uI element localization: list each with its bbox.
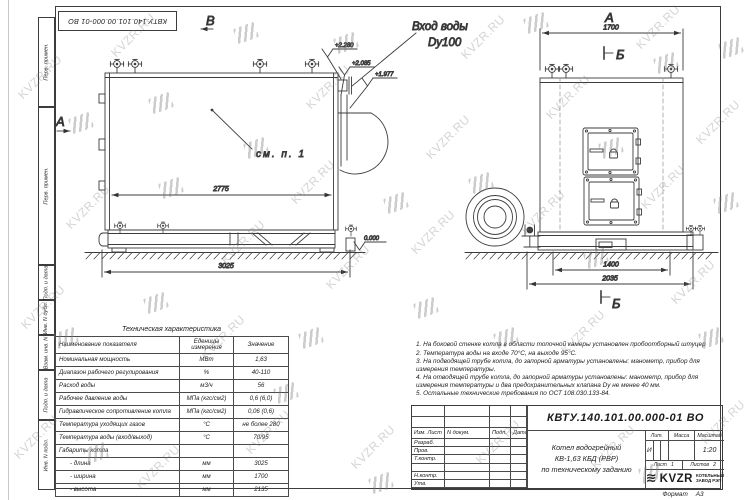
blower-valve bbox=[526, 227, 533, 234]
mass-header: Масса bbox=[669, 431, 696, 441]
title-block-signature-grid: Изм. ЛистN докум.Подп.ДатаРазраб.Пров.Т.… bbox=[412, 406, 527, 488]
spec-param-unit bbox=[180, 445, 234, 458]
spec-table: Техническая характеристика Наименование … bbox=[55, 326, 288, 497]
title-block-cell bbox=[412, 464, 445, 472]
spec-param-name: Расход воды bbox=[56, 380, 180, 393]
spec-table-row: Рабочее давление водыМПа (кгс/см2)0,6 (6… bbox=[56, 393, 289, 406]
title-block-cell: Подп. bbox=[490, 428, 511, 439]
title-block-cell: Дата bbox=[511, 428, 527, 439]
elevation-1977: +1.977 bbox=[375, 72, 394, 78]
spec-param-value bbox=[234, 445, 289, 458]
kvzr-logo-text: KVZR bbox=[660, 473, 693, 485]
dim-2775: 2775 bbox=[212, 186, 229, 193]
spec-param-name: - длина bbox=[56, 458, 180, 471]
lit-cell-2 bbox=[654, 441, 662, 460]
spec-table-row: - длинамм3025 bbox=[56, 458, 289, 471]
spec-table-row: Номинальная мощностьМВт1,63 bbox=[56, 354, 289, 367]
title-block-cell: Н.контр. bbox=[412, 472, 445, 480]
spec-table-grid: Наименование показателя Еденицы измерени… bbox=[55, 336, 289, 497]
spec-param-unit: МПа (кгс/см2) bbox=[180, 406, 234, 419]
product-name-line1: Котел водогрейный bbox=[552, 443, 621, 454]
drain-valve-icon bbox=[115, 222, 126, 233]
title-block-cell bbox=[490, 439, 511, 447]
elevation-2280: +2.280 bbox=[335, 43, 354, 49]
section-label-B-top: Б bbox=[616, 47, 625, 62]
spec-param-unit: МПа (кгс/см2) bbox=[180, 393, 234, 406]
title-block-cell bbox=[412, 417, 445, 428]
title-block-cell bbox=[490, 447, 511, 455]
elevation-0000: 0.000 bbox=[364, 236, 380, 242]
title-block-cell bbox=[511, 472, 527, 480]
kvzr-coil-icon: ≋ bbox=[646, 472, 657, 485]
sheets-total: 2 bbox=[713, 462, 716, 468]
lit-value: И bbox=[646, 441, 654, 460]
title-block-cell bbox=[445, 417, 490, 428]
drawing-sheet: { "watermark": { "text": "KVZR.RU" }, "s… bbox=[0, 0, 750, 500]
note-1: 1. На боковой стенке котла в области топ… bbox=[416, 341, 722, 349]
spec-param-unit: мм bbox=[180, 484, 234, 497]
inlet-label-line1: Вход воды bbox=[412, 21, 468, 33]
spec-param-unit: м3/ч bbox=[180, 380, 234, 393]
sheet-number: 1 bbox=[671, 462, 674, 468]
valve-icon bbox=[664, 64, 677, 78]
spec-param-value: 1,63 bbox=[234, 354, 289, 367]
technical-notes: 1. На боковой стенке котла в области топ… bbox=[416, 341, 722, 399]
sheet-label: Лист bbox=[654, 462, 667, 468]
title-block-cell bbox=[445, 480, 490, 488]
base-frame-side bbox=[538, 232, 693, 250]
spec-table-row: Расход водым3/ч56 bbox=[56, 380, 289, 393]
ground-hatch bbox=[86, 253, 356, 260]
valve-icon bbox=[305, 59, 318, 73]
title-block-cell: N докум. bbox=[445, 428, 490, 439]
spec-param-value: 56 bbox=[234, 380, 289, 393]
sheets-label: Листов bbox=[690, 462, 709, 468]
spec-table-row: - высотамм2135 bbox=[56, 484, 289, 497]
note-5: 5. Остальные технические требования по О… bbox=[416, 390, 722, 398]
company-logo: ≋ KVZR КОТЕЛЬНЫЙ ЗАВОД РЭП bbox=[646, 470, 724, 487]
spec-param-unit: мм bbox=[180, 458, 234, 471]
side-fitting bbox=[99, 139, 105, 150]
format-word: Формат bbox=[662, 491, 687, 498]
spec-param-name: Гидравлическое сопротивление котла bbox=[56, 406, 180, 419]
title-block-cell: Пров. bbox=[412, 447, 445, 455]
inlet-label-line2: Dy100 bbox=[428, 37, 462, 49]
drain-valve-icon bbox=[158, 222, 169, 233]
spec-param-unit: °С bbox=[180, 419, 234, 432]
spec-param-value: 70/95 bbox=[234, 432, 289, 445]
note-3: 3. На подводящей трубе котла, до запорно… bbox=[416, 358, 722, 373]
product-name-line2: КВ-1,63 КБД (РВР) bbox=[555, 454, 618, 465]
spec-param-name: Рабочее давление воды bbox=[56, 393, 180, 406]
spec-table-title: Техническая характеристика bbox=[55, 326, 288, 333]
spec-table-row: Температура уходящих газов°Сне более 280 bbox=[56, 419, 289, 432]
spec-param-name: Температура уходящих газов bbox=[56, 419, 180, 432]
product-name-line3: по техническому заданию bbox=[541, 465, 631, 476]
spec-table-row: Диапазон рабочего регулирования%40-110 bbox=[56, 367, 289, 380]
spec-param-value: не более 280 bbox=[234, 419, 289, 432]
base-frame-front bbox=[108, 230, 335, 248]
section-label-B-bottom: Б bbox=[612, 296, 621, 311]
doc-number: КВТУ.140.101.00.000-01 ВО bbox=[527, 406, 723, 431]
title-block-cell bbox=[445, 447, 490, 455]
format-value: А3 bbox=[696, 491, 704, 498]
dim-2035: 2035 bbox=[601, 276, 618, 283]
spec-header-value: Значение bbox=[234, 337, 289, 354]
title-block-cell bbox=[490, 464, 511, 472]
format-label: Формат А3 bbox=[640, 491, 726, 498]
furnace-door-lower bbox=[584, 177, 642, 225]
dim-1400: 1400 bbox=[603, 262, 619, 269]
spec-param-name: Номинальная мощность bbox=[56, 354, 180, 367]
spec-header-name: Наименование показателя bbox=[56, 337, 180, 354]
title-block-right: Лит. Масса Масштаб И 1:20 Лист 1 Листов … bbox=[645, 431, 724, 488]
view-label-A-top: А bbox=[604, 10, 614, 25]
title-block-cell bbox=[445, 472, 490, 480]
side-fitting bbox=[99, 94, 105, 103]
spec-param-value: 40-110 bbox=[234, 367, 289, 380]
spec-table-row: - ширинамм1700 bbox=[56, 471, 289, 484]
callout-see-item-1: см. п. 1 bbox=[256, 149, 306, 160]
spec-param-unit: МВт bbox=[180, 354, 234, 367]
lit-header: Лит. bbox=[646, 431, 669, 441]
title-block-cell bbox=[511, 406, 527, 417]
boiler-body-side bbox=[540, 78, 683, 232]
spec-table-row: Габариты котла bbox=[56, 445, 289, 458]
spec-param-value: 2135 bbox=[234, 484, 289, 497]
logo-subtext-2: ЗАВОД РЭП bbox=[696, 479, 724, 484]
spec-param-value: 0,06 (0,6) bbox=[234, 406, 289, 419]
valve-icon bbox=[559, 64, 572, 78]
scale-value: 1:20 bbox=[695, 441, 723, 461]
title-block-cell bbox=[445, 455, 490, 463]
title-block-cell bbox=[511, 480, 527, 488]
sheets-cell: Листов 2 bbox=[683, 461, 724, 470]
spec-param-name: Габариты котла bbox=[56, 445, 180, 458]
title-block-cell bbox=[445, 406, 490, 417]
sheet-cell: Лист 1 bbox=[646, 461, 683, 470]
scale-header: Масштаб bbox=[695, 431, 723, 441]
spec-param-name: Температура воды (вход/выход) bbox=[56, 432, 180, 445]
drain-valve-icon bbox=[346, 225, 357, 236]
drain-valve-icon bbox=[686, 225, 695, 235]
title-block-cell: Т.контр. bbox=[412, 455, 445, 463]
spec-param-unit: мм bbox=[180, 471, 234, 484]
side-fitting bbox=[99, 181, 105, 190]
title-block-cell bbox=[511, 464, 527, 472]
spec-param-value: 0,6 (6,0) bbox=[234, 393, 289, 406]
spec-param-name: - ширина bbox=[56, 471, 180, 484]
spec-table-row: Гидравлическое сопротивление котлаМПа (к… bbox=[56, 406, 289, 419]
spec-header-units: Еденицы измерения bbox=[180, 337, 234, 354]
title-block-cell bbox=[511, 439, 527, 447]
valve-icon bbox=[110, 59, 123, 73]
valve-icon bbox=[253, 59, 266, 73]
spec-param-value: 3025 bbox=[234, 458, 289, 471]
title-block-cell bbox=[490, 455, 511, 463]
title-block-cell bbox=[412, 406, 445, 417]
title-block-cell bbox=[511, 455, 527, 463]
title-block-cell bbox=[490, 417, 511, 428]
spec-param-name: - высота bbox=[56, 484, 180, 497]
product-name: Котел водогрейный КВ-1,63 КБД (РВР) по т… bbox=[527, 431, 645, 488]
title-block: Изм. ЛистN докум.Подп.ДатаРазраб.Пров.Т.… bbox=[411, 405, 723, 490]
title-block-cell: Изм. Лист bbox=[412, 428, 445, 439]
title-block-cell bbox=[511, 447, 527, 455]
lit-cell-3 bbox=[661, 441, 668, 460]
valve-icon bbox=[545, 64, 558, 78]
title-block-cell: Утв. bbox=[412, 480, 445, 488]
title-block-cell bbox=[445, 439, 490, 447]
spec-param-unit: °С bbox=[180, 432, 234, 445]
view-label-A-left: А bbox=[55, 114, 65, 129]
valve-icon bbox=[128, 59, 141, 73]
dim-3025: 3025 bbox=[218, 263, 234, 270]
furnace-door-upper bbox=[583, 128, 641, 175]
title-block-cell: Разраб. bbox=[412, 439, 445, 447]
note-4: 4. На отводящей трубе котла, до запорной… bbox=[416, 374, 722, 389]
spec-param-name: Диапазон рабочего регулирования bbox=[56, 367, 180, 380]
title-block-cell bbox=[490, 472, 511, 480]
note-2: 2. Температура воды на входе 70°С, на вы… bbox=[416, 350, 722, 358]
front-view: 2775 3025 В А см. п. 1 Вход воды Dy100 +… bbox=[55, 13, 468, 277]
side-view: 1700 1400 2035 А Б Б bbox=[465, 10, 718, 311]
drain-valve-icon bbox=[695, 225, 704, 235]
door-handle bbox=[590, 149, 603, 152]
spec-param-unit: % bbox=[180, 367, 234, 380]
spec-param-value: 1700 bbox=[234, 471, 289, 484]
title-block-cell bbox=[490, 480, 511, 488]
elevation-2085: +2.085 bbox=[352, 61, 371, 67]
title-block-cell bbox=[445, 464, 490, 472]
spec-table-row: Температура воды (вход/выход)°С70/95 bbox=[56, 432, 289, 445]
door-handle bbox=[591, 199, 604, 202]
view-label-B: В bbox=[206, 13, 215, 28]
ground-hatch bbox=[466, 253, 712, 260]
title-block-cell bbox=[490, 406, 511, 417]
blower-fan bbox=[466, 188, 540, 247]
title-block-cell bbox=[511, 417, 527, 428]
mass-value bbox=[669, 441, 696, 461]
dim-1700: 1700 bbox=[603, 25, 619, 32]
